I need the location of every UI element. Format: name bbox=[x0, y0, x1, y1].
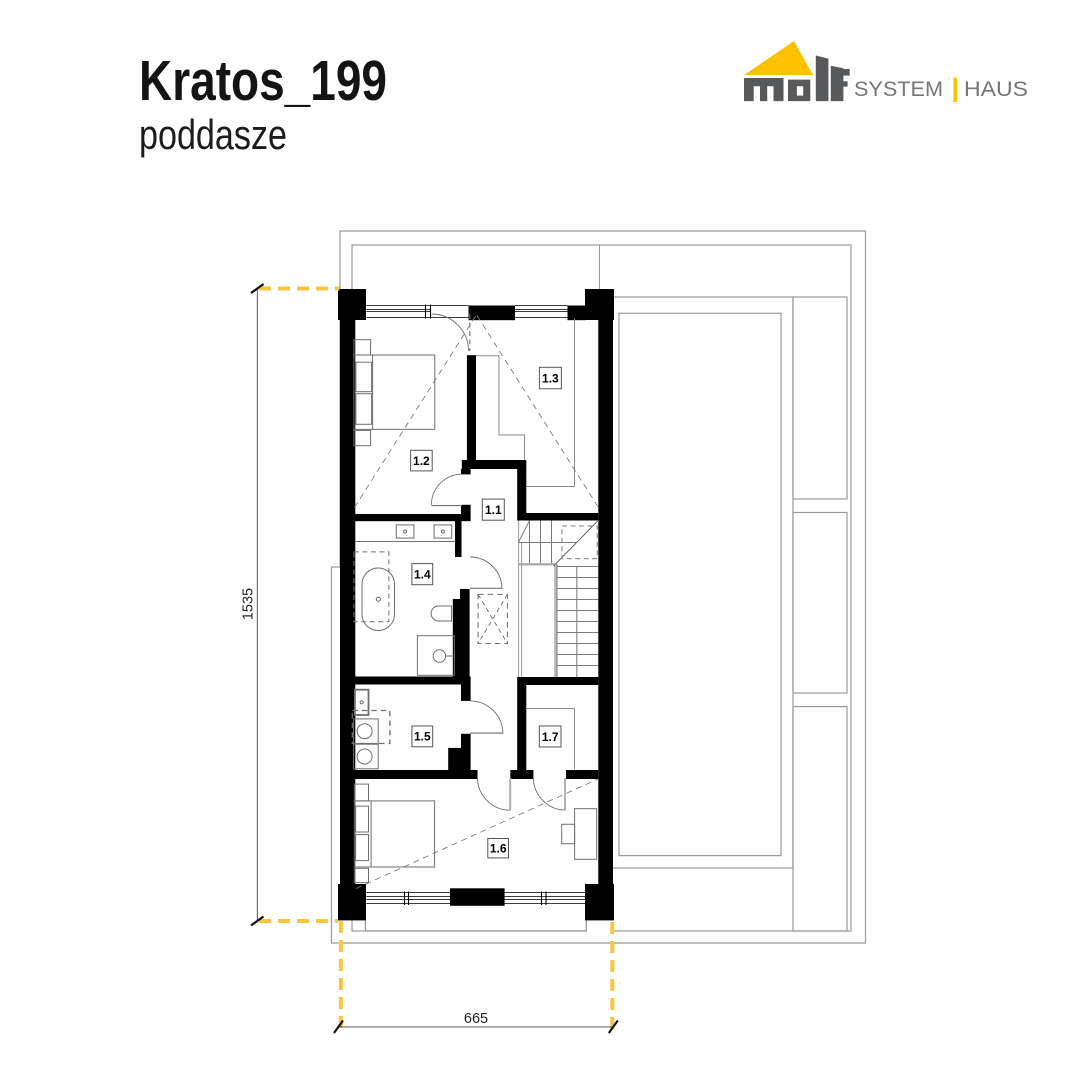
svg-text:HAUS: HAUS bbox=[964, 78, 1028, 101]
svg-text:SYSTEM: SYSTEM bbox=[854, 78, 943, 101]
svg-text:1.5: 1.5 bbox=[414, 730, 431, 744]
svg-text:1.7: 1.7 bbox=[542, 730, 559, 744]
svg-text:Kratos_199: Kratos_199 bbox=[139, 49, 387, 113]
svg-text:poddasze: poddasze bbox=[139, 111, 287, 158]
svg-text:1535: 1535 bbox=[241, 588, 257, 620]
svg-text:1.4: 1.4 bbox=[414, 567, 431, 581]
svg-text:1.6: 1.6 bbox=[490, 842, 507, 856]
svg-text:665: 665 bbox=[464, 1011, 488, 1027]
svg-text:1.1: 1.1 bbox=[485, 503, 502, 517]
svg-text:1.3: 1.3 bbox=[542, 371, 559, 385]
svg-text:1.2: 1.2 bbox=[413, 454, 430, 468]
